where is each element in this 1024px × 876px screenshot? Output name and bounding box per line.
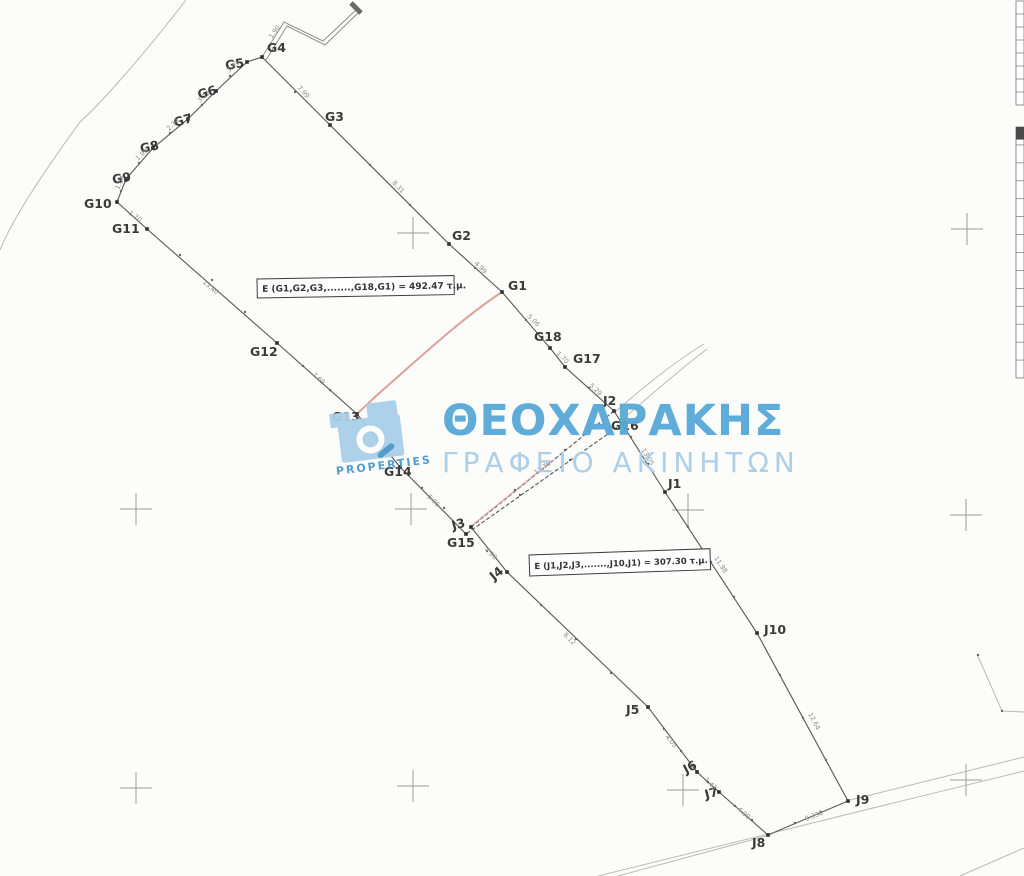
point-label-G14: G14	[384, 464, 412, 479]
survey-dot	[443, 507, 445, 509]
point-label-J9: J9	[855, 792, 869, 807]
point-label-J10: J10	[763, 622, 786, 637]
point-marker-G2	[447, 242, 451, 246]
survey-dot	[329, 389, 331, 391]
point-marker-J5	[646, 705, 650, 709]
survey-dot	[229, 75, 231, 77]
dimension-label: 13.05	[639, 447, 656, 467]
point-label-J6: J6	[679, 757, 699, 777]
point-label-G18: G18	[534, 329, 562, 344]
survey-dot	[569, 459, 571, 461]
survey-dot	[211, 279, 213, 281]
survey-dot	[802, 717, 804, 719]
boundary-g-southwest-boundary	[147, 229, 466, 534]
survey-dot	[977, 654, 979, 656]
point-label-G16: G16	[611, 418, 639, 433]
point-label-G1: G1	[508, 278, 527, 293]
dimension-label: 4.05	[663, 733, 678, 749]
survey-dot	[409, 204, 411, 206]
survey-dot	[1001, 710, 1003, 712]
dimension-label: 5.29	[588, 382, 604, 398]
road-line	[615, 344, 704, 412]
table-header-cell	[1016, 127, 1024, 140]
point-marker-G11	[145, 227, 149, 231]
point-label-J2: J2	[602, 393, 616, 408]
point-marker-G17	[563, 365, 567, 369]
road-line	[850, 757, 1024, 800]
boundary-ne-road-boundary	[502, 292, 848, 801]
survey-dot	[687, 526, 689, 528]
boundary-g-north-boundary	[262, 57, 502, 292]
grid-cross	[397, 770, 429, 802]
point-marker-G10	[115, 200, 119, 204]
point-label-J3: J3	[449, 515, 467, 533]
point-marker-J2	[612, 409, 616, 413]
grid-cross	[397, 217, 429, 249]
grid-cross	[667, 774, 699, 806]
survey-dot	[302, 365, 304, 367]
survey-dot	[369, 164, 371, 166]
dimension-label: 13.40	[201, 278, 220, 296]
boundary-divider-g15-g16	[466, 424, 622, 534]
road-line	[960, 848, 1024, 876]
point-marker-G4	[260, 55, 264, 59]
grid-cross	[120, 493, 152, 525]
point-label-G2: G2	[452, 228, 471, 243]
point-label-G17: G17	[573, 351, 601, 366]
survey-dot	[179, 254, 181, 256]
point-marker-J3	[469, 525, 473, 529]
point-label-G4: G4	[267, 40, 286, 55]
point-label-J8: J8	[751, 835, 765, 850]
dimension-label: 4.99	[473, 260, 489, 276]
grid-cross	[395, 493, 427, 525]
survey-plan-page: G1G2G3G4G5G6G7G8G9G10G11G12G13G14G15G16G…	[0, 0, 1024, 876]
survey-dot	[663, 728, 665, 730]
road-line	[618, 836, 766, 876]
survey-dot	[630, 436, 632, 438]
point-marker-G1	[500, 290, 504, 294]
wall-end-cap	[351, 3, 361, 13]
point-marker-J10	[755, 631, 759, 635]
road-line	[0, 0, 186, 250]
survey-dot	[514, 489, 516, 491]
survey-dot	[519, 494, 521, 496]
red-curve-g1-g13	[358, 292, 502, 413]
survey-dot	[244, 311, 246, 313]
dimension-label: 7.69	[311, 371, 327, 387]
point-label-G12: G12	[250, 344, 278, 359]
point-label-J1: J1	[667, 476, 681, 491]
road-line	[622, 349, 707, 420]
dimension-label: 7.99	[296, 84, 312, 100]
survey-dot	[734, 805, 736, 807]
road-line	[598, 771, 1024, 876]
survey-dot	[564, 449, 566, 451]
survey-plan-drawing: G1G2G3G4G5G6G7G8G9G10G11G12G13G14G15G16G…	[0, 0, 1024, 876]
dimension-label: 12.79	[533, 459, 553, 476]
point-marker-J8	[766, 833, 770, 837]
survey-dot	[294, 91, 296, 93]
dimension-label: 5.06	[526, 313, 542, 329]
survey-dot	[680, 750, 682, 752]
point-label-G13: G13	[332, 409, 360, 424]
point-label-J4: J4	[486, 563, 507, 584]
survey-dot	[377, 439, 379, 441]
dimension-label: 1.70	[555, 350, 571, 366]
point-label-J5: J5	[625, 702, 639, 717]
grid-cross	[950, 499, 982, 531]
point-marker-J1	[663, 490, 667, 494]
point-label-G15: G15	[447, 535, 475, 550]
survey-dot	[421, 487, 423, 489]
area-label-g-parcel: E (G1,G2,G3,.......,G18,G1) = 492.47 τ.μ…	[257, 275, 466, 298]
grid-cross	[951, 213, 983, 245]
point-marker-G18	[548, 346, 552, 350]
dimension-label: 11.98	[712, 555, 729, 575]
road-line	[977, 654, 1024, 712]
survey-dot	[779, 674, 781, 676]
area-label-j-parcel: E (J1,J2,J3,.......,J10,J1) = 307.30 τ.μ…	[529, 549, 711, 576]
survey-dot	[540, 604, 542, 606]
point-label-G10: G10	[84, 196, 112, 211]
survey-dot	[751, 819, 753, 821]
survey-dot	[825, 759, 827, 761]
point-label-G3: G3	[325, 109, 344, 124]
dimension-label: 8.31	[391, 179, 407, 195]
point-label-G11: G11	[112, 221, 140, 236]
point-marker-J9	[846, 799, 850, 803]
survey-dot	[733, 596, 735, 598]
point-marker-G5	[245, 60, 249, 64]
grid-cross	[120, 772, 152, 804]
dimension-label: 8.12	[562, 631, 578, 647]
point-marker-J4	[505, 570, 509, 574]
survey-dot	[610, 672, 612, 674]
survey-dot	[794, 822, 796, 824]
